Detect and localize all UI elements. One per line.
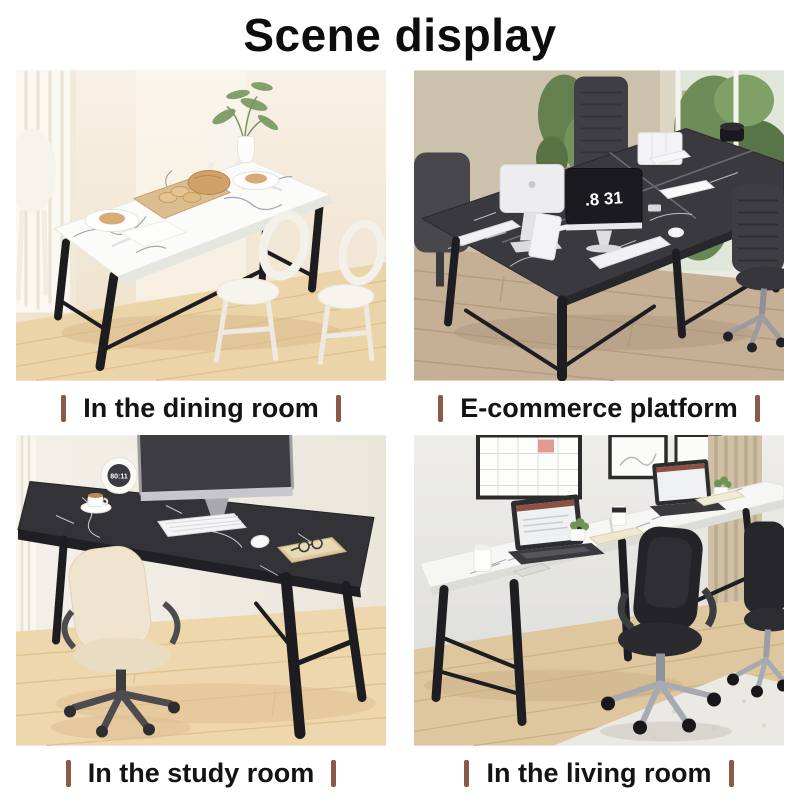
living-room-photo	[414, 435, 784, 746]
caption-study-room: In the study room	[16, 746, 386, 800]
scene-cell-living: In the living room	[414, 435, 784, 800]
scene-display-page: Scene display	[0, 0, 800, 800]
calendar-frame	[478, 436, 580, 498]
caption-bar-right	[729, 760, 734, 787]
caption-bar-right	[331, 760, 336, 787]
scene-cell-dining: In the dining room	[16, 70, 386, 435]
caption-text: In the living room	[486, 758, 711, 789]
caption-bar-left	[66, 760, 71, 787]
clock-time-text: 80:11	[110, 474, 128, 481]
caption-ecommerce: E-commerce platform	[414, 381, 784, 435]
office-platform-photo: .8 31	[414, 70, 784, 381]
caption-text: In the study room	[88, 758, 315, 789]
alarm-clock: 80:11	[101, 452, 137, 494]
caption-bar-right	[755, 395, 760, 422]
study-room-photo: 80:11	[16, 435, 386, 746]
caption-dining-room: In the dining room	[16, 381, 386, 435]
plate-back	[233, 172, 279, 190]
caption-bar-left	[61, 395, 66, 422]
page-title: Scene display	[0, 0, 800, 70]
dining-room-photo	[16, 70, 386, 381]
caption-text: E-commerce platform	[460, 393, 738, 424]
scene-cell-study: 80:11	[16, 435, 386, 800]
caption-bar-left	[438, 395, 443, 422]
caption-text: In the dining room	[83, 393, 318, 424]
caption-bar-right	[336, 395, 341, 422]
scene-grid: In the dining room	[0, 70, 800, 800]
caption-bar-left	[464, 760, 469, 787]
caption-living-room: In the living room	[414, 746, 784, 800]
scene-cell-office: .8 31	[414, 70, 784, 435]
monitor-clock-text: .8 31	[584, 188, 623, 210]
